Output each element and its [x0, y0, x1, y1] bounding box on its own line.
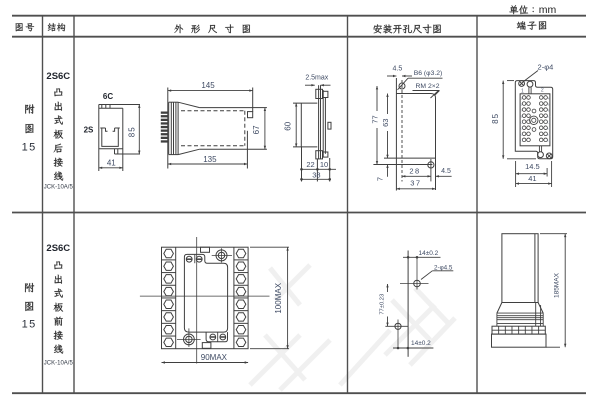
- svg-text:10: 10: [547, 114, 551, 118]
- svg-text:4.5: 4.5: [441, 168, 451, 175]
- svg-text:14±0.2: 14±0.2: [411, 340, 431, 347]
- svg-text:28: 28: [409, 166, 420, 175]
- svg-text:10: 10: [320, 160, 328, 169]
- svg-text:4.5: 4.5: [393, 66, 403, 73]
- svg-text:37: 37: [410, 179, 421, 188]
- svg-text:2S6C: 2S6C: [46, 243, 70, 254]
- svg-text:1: 1: [521, 88, 524, 94]
- svg-text:16: 16: [547, 133, 551, 137]
- svg-text:B6 (φ3.2): B6 (φ3.2): [414, 70, 443, 77]
- svg-text:38: 38: [312, 170, 320, 179]
- svg-text:14: 14: [547, 127, 551, 131]
- svg-text:22: 22: [306, 160, 314, 169]
- svg-text:185MAX: 185MAX: [554, 272, 561, 298]
- svg-text:11: 11: [520, 121, 523, 125]
- svg-text:77: 77: [371, 115, 380, 123]
- svg-text:15: 15: [22, 141, 37, 153]
- svg-text:17: 17: [520, 139, 524, 143]
- svg-text:41: 41: [107, 158, 116, 167]
- svg-text:JCK-10A/5: JCK-10A/5: [44, 361, 74, 367]
- svg-text:15: 15: [22, 318, 37, 330]
- svg-text:63: 63: [381, 119, 390, 127]
- svg-text:2S: 2S: [84, 126, 94, 135]
- svg-text:RM 2×2: RM 2×2: [416, 83, 440, 90]
- svg-text:2.5max: 2.5max: [305, 75, 328, 82]
- svg-text:2S6C: 2S6C: [46, 71, 70, 82]
- svg-text:2-φ4: 2-φ4: [538, 62, 554, 71]
- svg-text:85: 85: [491, 113, 500, 124]
- svg-text:7: 7: [375, 177, 384, 181]
- svg-text:67: 67: [252, 125, 261, 134]
- svg-text:135: 135: [203, 155, 217, 164]
- svg-text:13: 13: [520, 127, 524, 131]
- svg-text:15: 15: [520, 133, 524, 137]
- svg-text:85: 85: [127, 126, 136, 137]
- svg-text:14±0.2: 14±0.2: [418, 250, 438, 257]
- svg-text:41: 41: [528, 174, 536, 183]
- svg-text:2: 2: [541, 88, 544, 94]
- svg-text:145: 145: [201, 81, 215, 90]
- svg-text:14.5: 14.5: [525, 162, 540, 171]
- svg-text:60: 60: [284, 121, 293, 130]
- svg-text:12: 12: [547, 121, 551, 125]
- svg-text:6C: 6C: [103, 92, 113, 101]
- svg-text:100MAX: 100MAX: [274, 282, 283, 313]
- svg-text:JCK-10A/5: JCK-10A/5: [44, 184, 74, 190]
- svg-text:90MAX: 90MAX: [201, 353, 228, 362]
- svg-text:77±0.23: 77±0.23: [380, 294, 386, 315]
- svg-text:18: 18: [547, 139, 551, 143]
- svg-text:mm: mm: [539, 4, 557, 16]
